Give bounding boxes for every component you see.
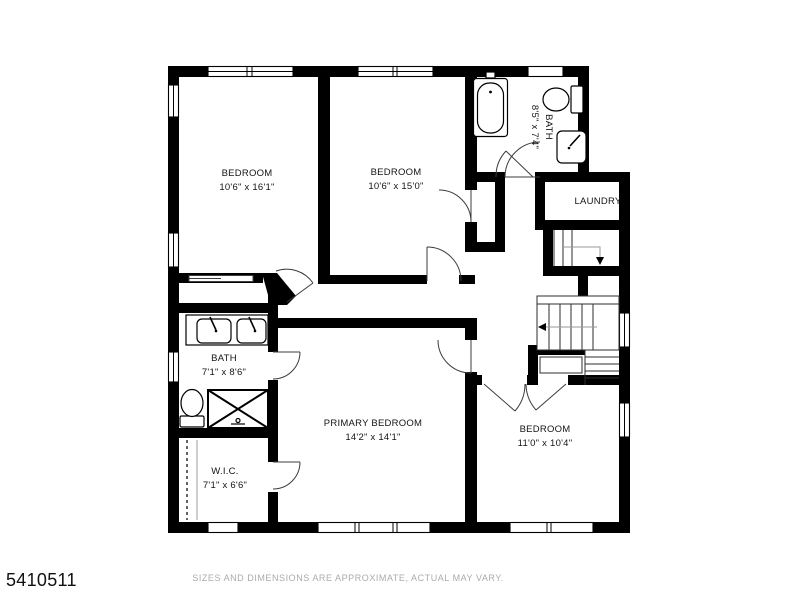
room-dims: 7'1" x 8'6" bbox=[202, 366, 246, 380]
double-vanity bbox=[186, 315, 268, 345]
closet-slider-bedroom1 bbox=[189, 276, 253, 282]
room-dims: 14'2" x 14'1" bbox=[324, 431, 422, 445]
shower-icon bbox=[208, 390, 268, 428]
door-bedroom2 bbox=[427, 247, 461, 281]
room-name: BEDROOM bbox=[518, 423, 573, 437]
sink-icon bbox=[557, 131, 586, 163]
sink-icon bbox=[237, 317, 266, 343]
under-stair-closet bbox=[540, 357, 582, 373]
door-primary-bath bbox=[273, 352, 300, 379]
room-dims: 11'0" x 10'4" bbox=[518, 437, 573, 451]
floor-plan-page: BEDROOM 10'6" x 16'1" BEDROOM 10'6" x 15… bbox=[0, 0, 800, 600]
door-bedroom3-left bbox=[484, 384, 525, 411]
floor-plan-drawing bbox=[0, 0, 800, 600]
staircase-upper-flight bbox=[554, 230, 572, 266]
room-label-hall-bath: BATH 8'5" x 7'4" bbox=[527, 105, 555, 149]
room-name: BATH bbox=[202, 352, 246, 366]
listing-id: 5410511 bbox=[6, 570, 77, 591]
room-dims: 10'6" x 16'1" bbox=[219, 181, 274, 195]
room-dims: 10'6" x 15'0" bbox=[368, 180, 423, 194]
sink-icon bbox=[197, 317, 231, 343]
room-label-bedroom3: BEDROOM 11'0" x 10'4" bbox=[518, 423, 573, 451]
room-name: W.I.C. bbox=[203, 465, 247, 479]
toilet-icon bbox=[180, 390, 204, 428]
room-label-wic: W.I.C. 7'1" x 6'6" bbox=[203, 465, 247, 493]
room-label-bedroom1: BEDROOM 10'6" x 16'1" bbox=[219, 167, 274, 195]
room-dims: 8'5" x 7'4" bbox=[527, 105, 541, 149]
room-name: BEDROOM bbox=[368, 166, 423, 180]
room-dims: 7'1" x 6'6" bbox=[203, 479, 247, 493]
stair-arrow-down bbox=[563, 247, 604, 265]
room-label-primary-bath: BATH 7'1" x 8'6" bbox=[202, 352, 246, 380]
room-label-laundry: LAUNDRY bbox=[575, 195, 622, 209]
room-label-bedroom2: BEDROOM 10'6" x 15'0" bbox=[368, 166, 423, 194]
door-bedroom3-right bbox=[526, 384, 566, 410]
room-name: BATH bbox=[541, 105, 555, 149]
disclaimer-text: SIZES AND DIMENSIONS ARE APPROXIMATE, AC… bbox=[192, 573, 503, 583]
room-label-primary-bedroom: PRIMARY BEDROOM 14'2" x 14'1" bbox=[324, 417, 422, 445]
room-name: BEDROOM bbox=[219, 167, 274, 181]
room-name: PRIMARY BEDROOM bbox=[324, 417, 422, 431]
door-wic bbox=[273, 462, 300, 489]
door-bedroom2-closet bbox=[439, 190, 471, 222]
bathtub-icon bbox=[474, 72, 508, 137]
room-name: LAUNDRY bbox=[575, 195, 622, 209]
closet-rod-line bbox=[187, 440, 197, 520]
door-primary-bedroom bbox=[438, 340, 471, 373]
